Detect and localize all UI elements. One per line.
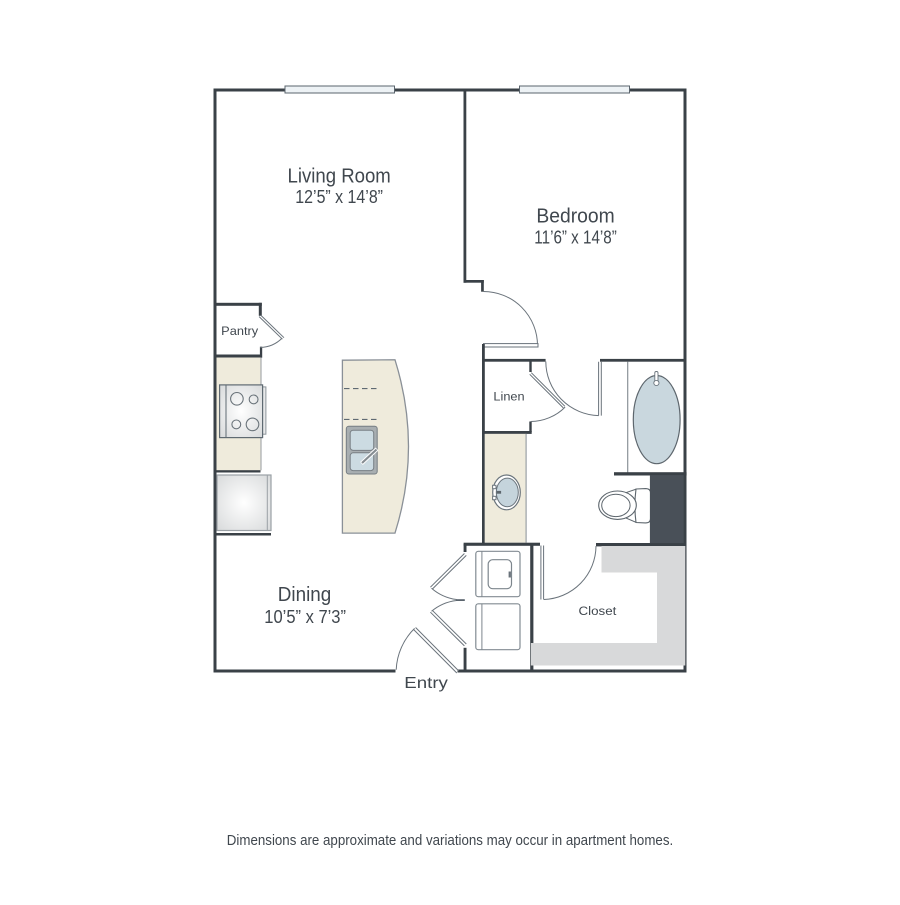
svg-text:Linen: Linen [493, 389, 524, 403]
svg-text:Pantry: Pantry [221, 324, 259, 338]
svg-text:Entry: Entry [404, 675, 448, 692]
svg-text:Dimensions are approximate and: Dimensions are approximate and variation… [227, 833, 673, 849]
svg-text:10’5” x 7’3”: 10’5” x 7’3” [264, 606, 346, 627]
svg-text:12’5” x 14’8”: 12’5” x 14’8” [295, 186, 383, 207]
svg-text:Living Room: Living Room [288, 164, 391, 187]
svg-text:Closet: Closet [579, 604, 618, 618]
svg-text:Dining: Dining [278, 583, 332, 606]
svg-text:11’6” x 14’8”: 11’6” x 14’8” [534, 226, 617, 247]
svg-text:Bedroom: Bedroom [536, 205, 614, 228]
